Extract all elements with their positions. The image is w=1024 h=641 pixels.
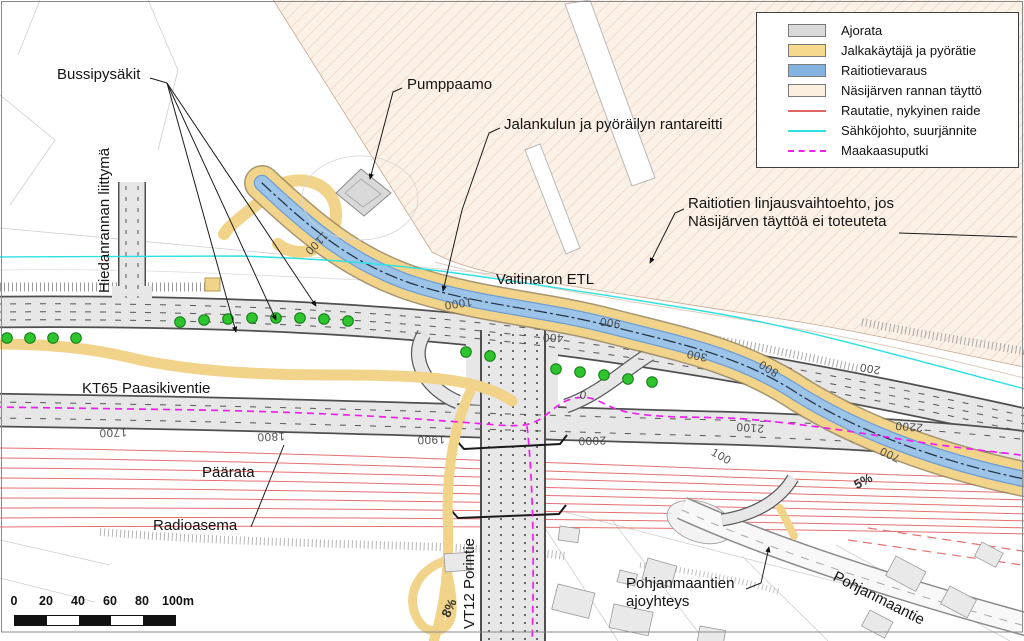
legend-swatch-raitiotievaraus bbox=[788, 64, 826, 77]
label-vaitinaro: Vaitinaron ETL bbox=[496, 271, 594, 289]
label-bussipysakit: Bussipysäkit bbox=[57, 66, 140, 84]
scale-segments bbox=[14, 615, 176, 626]
legend-rows: AjorataJalkakäytäjä ja pyörätieRaitiotie… bbox=[788, 24, 1018, 158]
label-ajoyhteys-line1: Pohjanmaantien bbox=[626, 575, 734, 593]
legend-swatch-sahkojohto bbox=[788, 130, 826, 132]
legend-item-raitiotievaraus: Raitiotievaraus bbox=[788, 64, 1018, 78]
label-paarata: Päärata bbox=[202, 464, 255, 482]
legend-item-jalkakaytava: Jalkakäytäjä ja pyörätie bbox=[788, 44, 1018, 58]
plan-drawing: Bussipysäkit Pumppaamo Jalankulun ja pyö… bbox=[0, 0, 1024, 641]
legend-label-rautatie: Rautatie, nykyinen raide bbox=[841, 103, 980, 118]
scale-tick-label: 20 bbox=[39, 594, 53, 608]
label-hiedanranta: Hiedanrannan liittymä bbox=[96, 148, 114, 293]
legend-item-ajorata: Ajorata bbox=[788, 24, 1018, 38]
bus-stop-pad bbox=[205, 278, 220, 291]
label-raitiotie-line1: Raitiotien linjausvaihtoehto, jos bbox=[688, 195, 894, 213]
legend-item-maakaasuputki: Maakaasuputki bbox=[788, 144, 1018, 158]
legend-label-ajorata: Ajorata bbox=[841, 23, 882, 38]
label-pumppaamo: Pumppaamo bbox=[407, 76, 492, 94]
legend-swatch-maakaasuputki bbox=[788, 150, 826, 152]
label-raitiotie-vaihtoehto: Raitiotien linjausvaihtoehto, jos Näsijä… bbox=[688, 195, 894, 231]
legend-item-nasijarven-taytto: Näsijärven rannan täyttö bbox=[788, 84, 1018, 98]
legend-item-rautatie: Rautatie, nykyinen raide bbox=[788, 104, 1018, 118]
label-rantareitti: Jalankulun ja pyöräilyn rantareitti bbox=[504, 116, 722, 134]
scale-tick-label: 60 bbox=[103, 594, 117, 608]
scale-segment bbox=[143, 616, 175, 625]
scale-tick-label: 100m bbox=[162, 594, 194, 608]
label-raitiotie-line2: Näsijärven täyttöä ei toteuteta bbox=[688, 213, 894, 231]
scale-segment bbox=[79, 616, 111, 625]
label-ajoyhteys: Pohjanmaantien ajoyhteys bbox=[626, 575, 734, 611]
legend-label-maakaasuputki: Maakaasuputki bbox=[841, 143, 928, 158]
legend-label-nasijarven-taytto: Näsijärven rannan täyttö bbox=[841, 83, 982, 98]
scale-tick-label: 40 bbox=[71, 594, 85, 608]
legend-swatch-ajorata bbox=[788, 24, 826, 37]
legend-label-jalkakaytava: Jalkakäytäjä ja pyörätie bbox=[841, 43, 976, 58]
legend-item-sahkojohto: Sähköjohto, suurjännite bbox=[788, 124, 1018, 138]
scale-tick-label: 80 bbox=[135, 594, 149, 608]
label-radioasema: Radioasema bbox=[153, 517, 237, 535]
label-vt12: VT12 Porintie bbox=[461, 538, 479, 629]
legend: AjorataJalkakäytäjä ja pyörätieRaitiotie… bbox=[756, 12, 1019, 168]
legend-label-sahkojohto: Sähköjohto, suurjännite bbox=[841, 123, 977, 138]
scale-bar: 020406080100m bbox=[2, 594, 212, 636]
scale-segment bbox=[111, 616, 143, 625]
legend-swatch-rautatie bbox=[788, 110, 826, 112]
scale-segment bbox=[15, 616, 47, 625]
legend-swatch-nasijarven-taytto bbox=[788, 84, 826, 97]
legend-label-raitiotievaraus: Raitiotievaraus bbox=[841, 63, 927, 78]
scale-segment bbox=[47, 616, 79, 625]
legend-swatch-jalkakaytava bbox=[788, 44, 826, 57]
label-ajoyhteys-line2: ajoyhteys bbox=[626, 593, 734, 611]
label-kt65: KT65 Paasikiventie bbox=[82, 380, 210, 398]
scale-tick-label: 0 bbox=[11, 594, 18, 608]
